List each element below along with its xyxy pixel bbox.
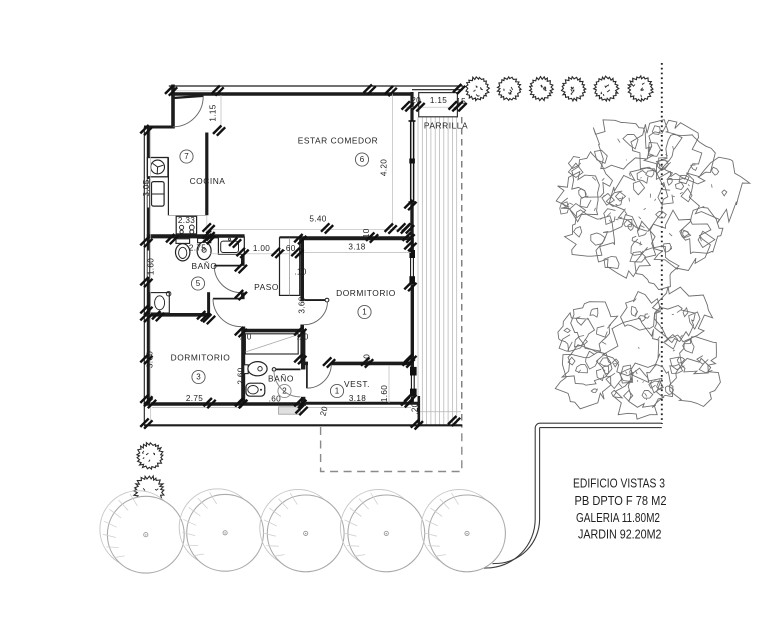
svg-text:2.60: 2.60 [237, 367, 246, 384]
svg-text:2.75: 2.75 [186, 394, 203, 403]
svg-text:2.33: 2.33 [178, 216, 195, 225]
svg-text:1.15: 1.15 [430, 96, 447, 105]
svg-text:4.20: 4.20 [379, 159, 388, 176]
svg-text:3.60: 3.60 [145, 351, 154, 368]
svg-text:3.05: 3.05 [142, 179, 151, 196]
svg-text:DORMITORIO: DORMITORIO [171, 353, 231, 363]
svg-text:3: 3 [196, 373, 201, 382]
svg-text:DORMITORIO: DORMITORIO [336, 288, 396, 298]
svg-text:1.60: 1.60 [147, 258, 156, 275]
svg-text:.10: .10 [362, 228, 371, 240]
svg-text:BAÑO: BAÑO [268, 374, 294, 384]
svg-text:GALERIA 11.80M2: GALERIA 11.80M2 [576, 510, 660, 525]
svg-text:.10: .10 [239, 333, 251, 342]
svg-text:.20: .20 [409, 96, 421, 105]
svg-text:.10: .10 [294, 268, 306, 277]
svg-text:1: 1 [362, 308, 367, 317]
svg-text:COCINA: COCINA [190, 176, 226, 186]
svg-text:EDIFICIO VISTAS 3: EDIFICIO VISTAS 3 [573, 476, 665, 491]
svg-text:.60: .60 [283, 244, 295, 253]
svg-text:6: 6 [360, 155, 365, 164]
svg-text:JARDIN 92.20M2: JARDIN 92.20M2 [578, 527, 662, 542]
svg-text:1.15: 1.15 [209, 104, 218, 121]
svg-text:5: 5 [196, 279, 201, 288]
svg-text:.60: .60 [269, 395, 281, 404]
svg-text:7: 7 [184, 152, 189, 161]
svg-text:PASO: PASO [254, 282, 279, 292]
svg-text:2: 2 [282, 387, 287, 396]
svg-text:.15: .15 [454, 97, 466, 106]
svg-text:5.40: 5.40 [309, 215, 326, 224]
svg-text:BAÑO: BAÑO [192, 261, 218, 271]
svg-text:3.18: 3.18 [349, 394, 366, 403]
svg-text:PB DPTO F 78 M2: PB DPTO F 78 M2 [575, 493, 667, 508]
svg-text:1.00: 1.00 [253, 244, 270, 253]
svg-text:3.18: 3.18 [348, 242, 365, 251]
svg-text:1: 1 [335, 387, 340, 396]
svg-text:VEST.: VEST. [344, 379, 370, 389]
svg-text:.20: .20 [410, 402, 419, 414]
svg-text:3.60: 3.60 [298, 296, 307, 313]
svg-text:PARRILLA: PARRILLA [424, 121, 468, 131]
svg-text:.10: .10 [362, 354, 371, 366]
svg-text:.10: .10 [296, 333, 308, 342]
svg-text:1.60: 1.60 [380, 385, 389, 402]
svg-text:ESTAR COMEDOR: ESTAR COMEDOR [298, 136, 379, 146]
svg-text:2.75: 2.75 [189, 244, 206, 253]
